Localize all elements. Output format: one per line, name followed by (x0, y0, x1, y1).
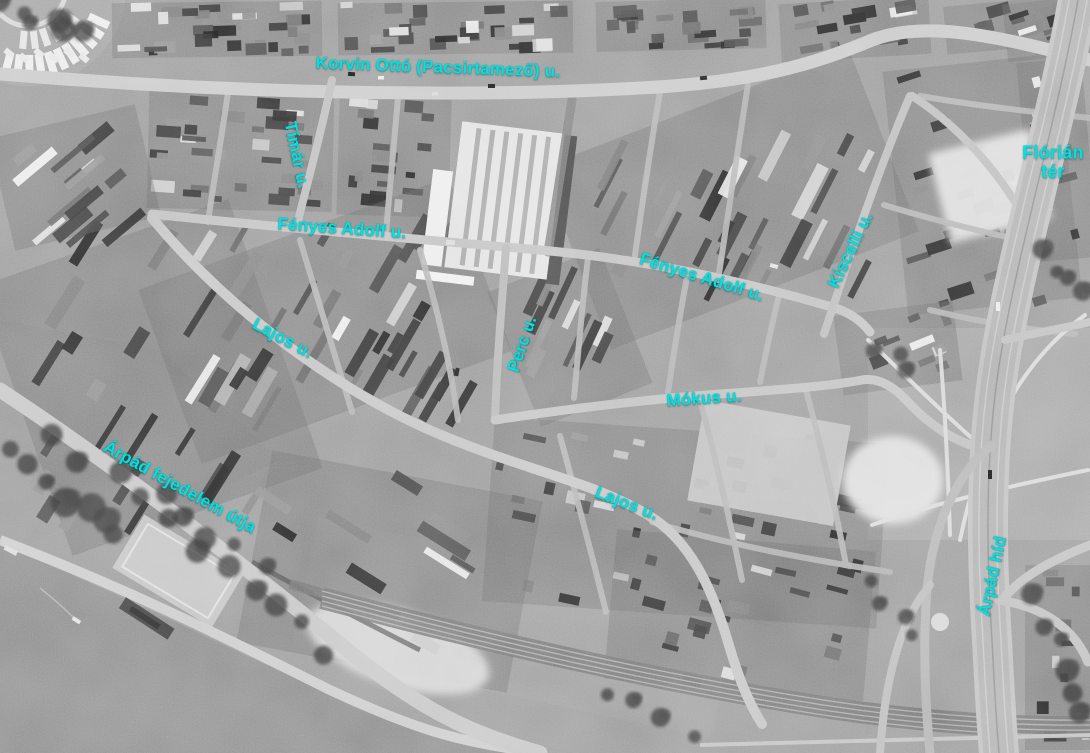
street-labels-layer: Korvin Ottó (Pacsirtamező) u. Tímár u. F… (0, 0, 1090, 753)
street-label-lajos-u-north: Lajos u. (250, 315, 316, 361)
street-label-kiscelli-u: Kiscelli u. (824, 210, 875, 291)
street-label-arpad-fejedelem-utja: Árpád fejedelem útja (101, 438, 259, 536)
street-label-mokus-u: Mókus u. (666, 387, 742, 409)
street-label-perc-u: Perc u. (505, 314, 540, 374)
street-label-fenyes-adolf-u-east: Fényes Adolf u. (638, 250, 766, 304)
street-label-arpad-hid: Árpád híd (975, 535, 1008, 618)
aerial-photo-stage: Korvin Ottó (Pacsirtamező) u. Tímár u. F… (0, 0, 1090, 753)
street-label-fenyes-adolf-u-west: Fényes Adolf u. (277, 215, 407, 241)
square-label-florian-ter: Flórián tér (1010, 144, 1090, 183)
street-label-timar-u: Tímár u. (282, 120, 313, 190)
street-label-lajos-u-south: Lajos u. (593, 483, 661, 522)
street-label-korvin-otto-u: Korvin Ottó (Pacsirtamező) u. (315, 54, 560, 80)
